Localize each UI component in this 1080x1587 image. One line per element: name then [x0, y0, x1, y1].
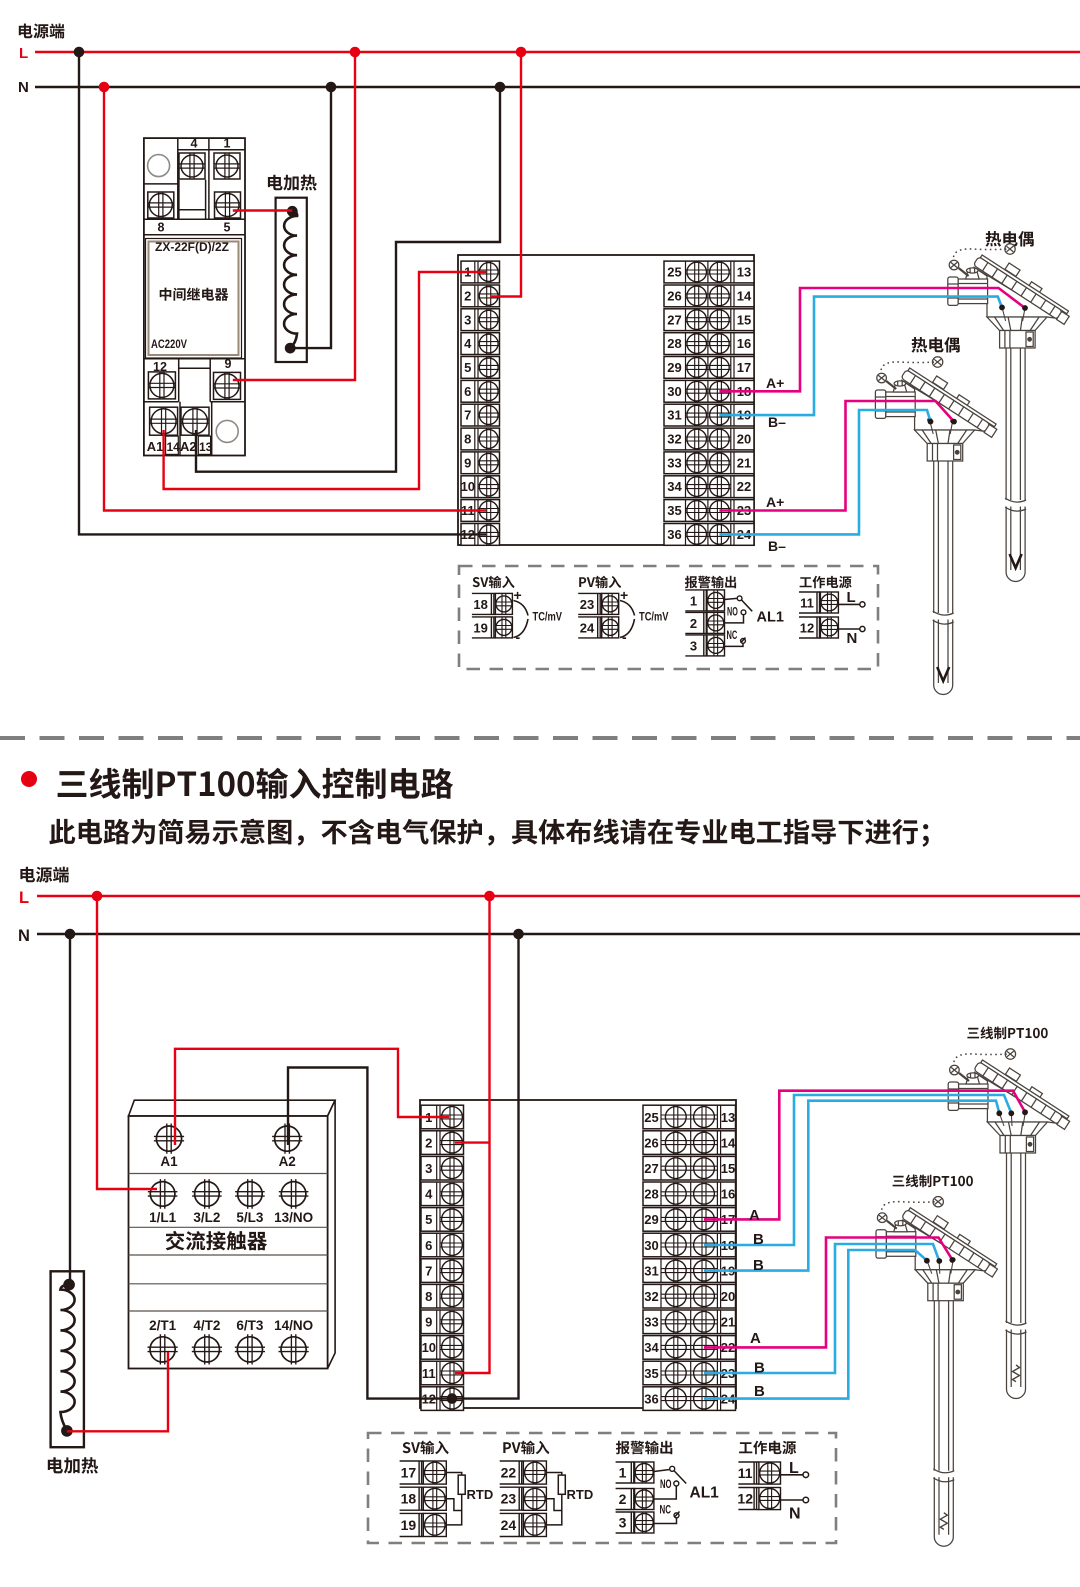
svg-text:4: 4: [464, 336, 472, 351]
svg-text:NC: NC: [660, 1503, 672, 1517]
svg-text:17: 17: [737, 360, 751, 375]
svg-text:N: N: [789, 1506, 801, 1523]
svg-text:NC: NC: [727, 630, 738, 642]
svg-text:12: 12: [737, 1491, 753, 1507]
svg-text:24: 24: [580, 620, 595, 635]
svg-text:23: 23: [501, 1491, 517, 1507]
svg-text:19: 19: [473, 620, 487, 635]
svg-text:1: 1: [690, 593, 697, 608]
svg-text:3: 3: [690, 638, 697, 653]
svg-text:15: 15: [737, 312, 751, 327]
svg-text:B: B: [753, 1257, 764, 1274]
svg-text:13: 13: [199, 440, 213, 454]
svg-text:B–: B–: [768, 414, 786, 430]
svg-text:6: 6: [464, 384, 471, 399]
svg-text:22: 22: [737, 479, 751, 494]
svg-text:21: 21: [721, 1315, 735, 1330]
svg-text:N: N: [18, 79, 29, 96]
svg-text:14/NO: 14/NO: [274, 1318, 313, 1333]
svg-text:11: 11: [738, 1465, 753, 1481]
svg-text:34: 34: [667, 479, 682, 494]
svg-text:1/L1: 1/L1: [149, 1210, 177, 1225]
svg-text:AL1: AL1: [690, 1485, 720, 1502]
svg-text:2: 2: [690, 616, 697, 631]
svg-text:6/T3: 6/T3: [236, 1318, 264, 1333]
svg-text:RTD: RTD: [467, 1487, 494, 1502]
svg-text:A1: A1: [147, 439, 164, 454]
svg-text:25: 25: [667, 265, 681, 280]
svg-text:3/L2: 3/L2: [193, 1210, 220, 1225]
svg-text:21: 21: [737, 455, 751, 470]
svg-text:17: 17: [401, 1465, 417, 1481]
svg-text:1: 1: [619, 1465, 627, 1481]
svg-text:13/NO: 13/NO: [274, 1210, 313, 1225]
svg-text:7: 7: [464, 408, 471, 423]
svg-text:L: L: [19, 45, 28, 62]
svg-text:26: 26: [644, 1135, 658, 1150]
svg-text:A2: A2: [180, 439, 197, 454]
svg-text:3: 3: [619, 1515, 627, 1531]
svg-text:4: 4: [191, 137, 198, 151]
svg-text:3: 3: [464, 312, 471, 327]
svg-text:ZX-22F(D)/2Z: ZX-22F(D)/2Z: [155, 240, 229, 254]
svg-text:31: 31: [644, 1263, 658, 1278]
svg-text:18: 18: [401, 1491, 417, 1507]
svg-text:RTD: RTD: [567, 1487, 594, 1502]
svg-text:A2: A2: [279, 1154, 296, 1169]
svg-text:10: 10: [422, 1340, 436, 1355]
svg-text:15: 15: [721, 1161, 735, 1176]
svg-text:A+: A+: [766, 494, 784, 510]
svg-text:31: 31: [667, 408, 681, 423]
svg-text:13: 13: [737, 265, 751, 280]
svg-text:14: 14: [737, 289, 752, 304]
svg-text:27: 27: [644, 1161, 658, 1176]
svg-text:B: B: [753, 1231, 764, 1248]
svg-text:33: 33: [644, 1315, 658, 1330]
svg-text:A+: A+: [766, 375, 784, 391]
svg-text:5: 5: [224, 221, 231, 235]
svg-text:2: 2: [425, 1135, 432, 1150]
svg-text:5/L3: 5/L3: [236, 1210, 264, 1225]
svg-text:11: 11: [422, 1366, 436, 1381]
svg-text:A1: A1: [160, 1154, 178, 1169]
svg-text:3: 3: [425, 1161, 432, 1176]
svg-text:L: L: [789, 1460, 799, 1477]
svg-text:16: 16: [721, 1187, 735, 1202]
svg-text:26: 26: [667, 289, 681, 304]
svg-text:27: 27: [667, 312, 681, 327]
svg-text:TC/mV: TC/mV: [639, 610, 669, 624]
svg-text:9: 9: [464, 455, 471, 470]
svg-text:29: 29: [644, 1212, 658, 1227]
svg-text:24: 24: [501, 1517, 517, 1533]
svg-text:4: 4: [425, 1187, 433, 1202]
svg-text:32: 32: [667, 432, 681, 447]
svg-text:9: 9: [225, 357, 232, 371]
svg-text:TC/mV: TC/mV: [533, 610, 563, 624]
svg-text:5: 5: [464, 360, 471, 375]
svg-text:2: 2: [619, 1491, 627, 1507]
svg-text:A: A: [750, 1330, 761, 1347]
svg-text:14: 14: [167, 440, 181, 454]
svg-text:8: 8: [464, 432, 471, 447]
svg-text:9: 9: [425, 1315, 432, 1330]
svg-text:19: 19: [401, 1517, 417, 1533]
svg-text:8: 8: [158, 221, 165, 235]
svg-text:13: 13: [721, 1110, 735, 1125]
svg-text:L: L: [847, 589, 856, 606]
svg-text:A: A: [749, 1207, 760, 1224]
svg-text:N: N: [847, 630, 858, 647]
svg-text:35: 35: [667, 503, 681, 518]
svg-text:23: 23: [580, 597, 594, 612]
svg-text:2/T1: 2/T1: [149, 1318, 177, 1333]
svg-text:N: N: [18, 927, 30, 945]
svg-text:10: 10: [461, 479, 475, 494]
svg-text:28: 28: [644, 1187, 658, 1202]
svg-text:NO: NO: [660, 1477, 672, 1491]
svg-text:8: 8: [425, 1289, 432, 1304]
svg-text:18: 18: [473, 597, 487, 612]
svg-text:36: 36: [667, 527, 681, 542]
svg-text:22: 22: [501, 1465, 517, 1481]
svg-text:1: 1: [224, 137, 231, 151]
svg-text:36: 36: [644, 1391, 658, 1406]
svg-text:25: 25: [644, 1110, 658, 1125]
svg-text:6: 6: [425, 1238, 432, 1253]
svg-text:11: 11: [800, 596, 814, 611]
svg-text:B: B: [754, 1360, 765, 1377]
svg-text:B: B: [754, 1383, 765, 1400]
svg-text:14: 14: [721, 1135, 736, 1150]
svg-text:L: L: [19, 889, 29, 907]
svg-text:34: 34: [644, 1340, 659, 1355]
svg-text:7: 7: [425, 1263, 432, 1278]
svg-text:29: 29: [667, 360, 681, 375]
svg-text:16: 16: [737, 336, 751, 351]
svg-text:B–: B–: [768, 538, 786, 554]
svg-text:4/T2: 4/T2: [193, 1318, 220, 1333]
svg-text:NO: NO: [727, 607, 738, 619]
svg-text:20: 20: [721, 1289, 735, 1304]
svg-text:28: 28: [667, 336, 681, 351]
svg-text:12: 12: [800, 621, 814, 636]
svg-text:35: 35: [644, 1366, 658, 1381]
svg-text:32: 32: [644, 1289, 658, 1304]
svg-text:20: 20: [737, 432, 751, 447]
svg-text:30: 30: [667, 384, 681, 399]
svg-text:33: 33: [667, 455, 681, 470]
svg-text:2: 2: [464, 289, 471, 304]
svg-text:AC220V: AC220V: [151, 337, 187, 351]
svg-text:AL1: AL1: [757, 610, 784, 626]
svg-text:5: 5: [425, 1212, 432, 1227]
svg-text:30: 30: [644, 1238, 658, 1253]
